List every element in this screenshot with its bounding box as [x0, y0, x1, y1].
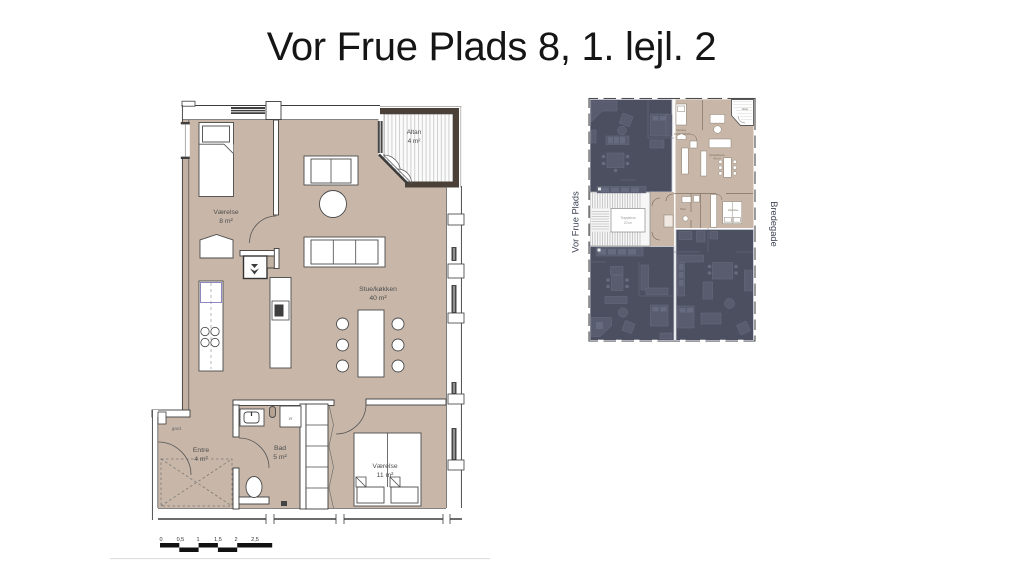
svg-text:4 m²: 4 m²	[408, 138, 421, 145]
svg-text:4 m²: 4 m²	[194, 456, 208, 463]
svg-text:Altan: Altan	[407, 129, 422, 136]
svg-text:40 m²: 40 m²	[369, 295, 387, 302]
svg-text:5 m²: 5 m²	[273, 454, 287, 461]
svg-text:2: 2	[234, 537, 237, 543]
svg-text:Vor Frue Plads: Vor Frue Plads	[571, 191, 581, 253]
svg-text:2,5: 2,5	[251, 537, 259, 543]
svg-text:1: 1	[196, 537, 199, 543]
svg-text:Bad: Bad	[274, 445, 286, 452]
svg-text:0: 0	[159, 537, 162, 543]
svg-text:Værelse: Værelse	[728, 208, 739, 212]
svg-text:Værelse: Værelse	[213, 209, 239, 216]
svg-text:8 m²: 8 m²	[219, 218, 233, 225]
svg-text:Trappehus: Trappehus	[620, 216, 636, 220]
svg-text:Entre: Entre	[193, 447, 209, 454]
svg-text:gard.: gard.	[172, 426, 182, 431]
svg-text:Bredegade: Bredegade	[769, 201, 779, 247]
svg-text:20 m²: 20 m²	[624, 221, 632, 225]
svg-text:40 m²: 40 m²	[713, 156, 720, 160]
svg-text:Altan: Altan	[742, 107, 749, 111]
svg-text:Bad: Bad	[681, 207, 686, 211]
svg-text:vr: vr	[289, 416, 293, 421]
svg-text:Værelse: Værelse	[676, 128, 687, 132]
svg-text:Værelse: Værelse	[372, 463, 398, 470]
svg-text:Stue/køkken: Stue/køkken	[359, 286, 397, 293]
svg-text:0,5: 0,5	[177, 537, 185, 543]
svg-text:11 m²: 11 m²	[377, 472, 395, 479]
svg-text:1,5: 1,5	[214, 537, 222, 543]
